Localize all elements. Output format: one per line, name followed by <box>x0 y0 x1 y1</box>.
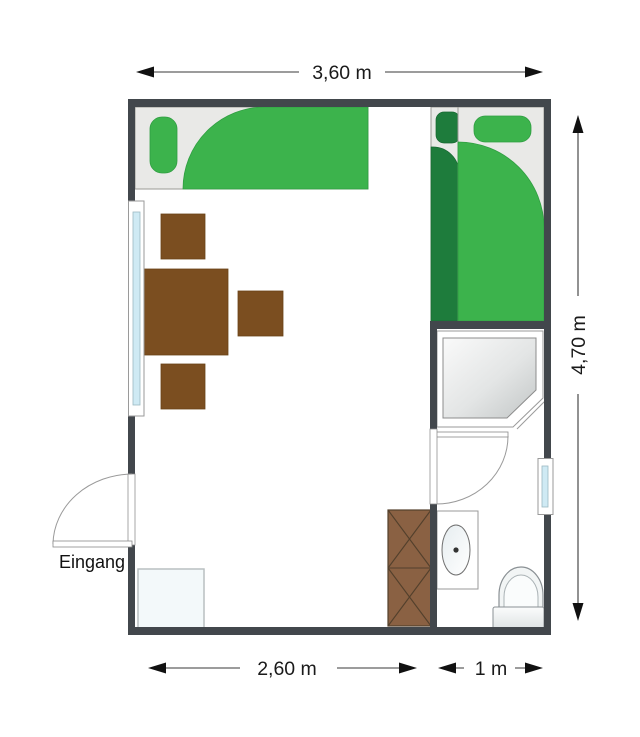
floor-plan-canvas: Eingang 3,60 m 4,70 m 2,60 m 1 m <box>0 0 640 737</box>
bed-rear-blanket <box>431 147 459 321</box>
chair-top <box>161 214 205 259</box>
bed-right-pillow <box>474 116 531 142</box>
chair-bottom <box>161 364 205 409</box>
washbasin <box>437 511 478 589</box>
wall-right <box>544 99 551 635</box>
toilet <box>493 567 544 630</box>
entrance-door-arc <box>53 474 132 544</box>
shower <box>437 331 545 429</box>
bathroom-door-leaf <box>436 432 508 437</box>
dimension-bottom-bathroom-label: 1 m <box>475 658 508 680</box>
window-left <box>129 201 145 416</box>
wall-left-lower <box>128 545 135 635</box>
arrow-down-icon <box>573 603 584 621</box>
chair-right <box>238 291 283 336</box>
dimension-bottom-bathroom: 1 m <box>438 658 543 680</box>
arrow-right-icon <box>525 67 543 78</box>
bathroom-door <box>436 432 508 504</box>
dimension-right-label: 4,70 m <box>568 315 590 375</box>
window-left-glass <box>133 212 140 405</box>
dimension-bottom-main-label: 2,60 m <box>257 658 317 680</box>
wall-top <box>128 99 551 107</box>
toilet-tank <box>493 607 544 630</box>
arrow-left-icon <box>438 663 456 674</box>
bed-rear-pillow <box>436 112 460 143</box>
dimension-bottom-main: 2,60 m <box>148 658 417 680</box>
window-right-glass <box>542 466 548 507</box>
dimension-top: 3,60 m <box>136 62 543 84</box>
wall-bottom <box>128 627 551 635</box>
entrance-door <box>53 474 132 547</box>
entrance-door-leaf <box>53 541 132 547</box>
bathroom-opening <box>430 429 437 504</box>
wall-bathroom-upper <box>430 321 437 429</box>
bathroom-door-arc <box>436 436 508 504</box>
table <box>142 269 228 355</box>
entrance-opening <box>128 474 135 545</box>
wall-bathroom-divider <box>430 321 551 329</box>
arrow-left-icon <box>136 67 154 78</box>
dining-set <box>142 214 283 409</box>
bed-left-pillow <box>150 117 177 173</box>
low-cabinet <box>138 569 204 630</box>
dimension-top-label: 3,60 m <box>312 62 372 84</box>
window-right <box>538 459 553 515</box>
bed-left <box>135 107 368 189</box>
dimension-right: 4,70 m <box>568 115 590 621</box>
bed-rear <box>431 107 460 321</box>
arrow-up-icon <box>573 115 584 133</box>
arrow-right-icon <box>525 663 543 674</box>
arrow-right-icon <box>399 663 417 674</box>
entrance-label: Eingang <box>59 552 125 572</box>
bed-right <box>458 107 544 321</box>
arrow-left-icon <box>148 663 166 674</box>
washbasin-drain <box>453 547 458 552</box>
wall-bathroom-lower <box>430 504 437 634</box>
wardrobe <box>388 510 431 626</box>
floor-plan: Eingang 3,60 m 4,70 m 2,60 m 1 m <box>0 0 640 737</box>
